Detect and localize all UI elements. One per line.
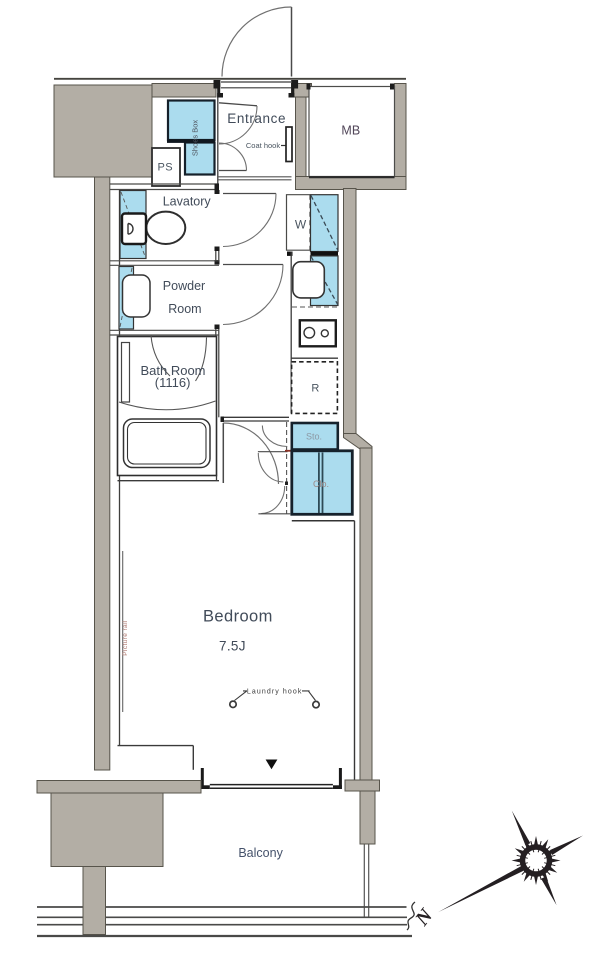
- svg-text:Coat hook: Coat hook: [246, 141, 280, 150]
- svg-text:W: W: [295, 217, 307, 231]
- svg-text:Laundry hook: Laundry hook: [247, 689, 303, 696]
- svg-text:Balcony: Balcony: [238, 846, 283, 860]
- svg-text:Shoes Box: Shoes Box: [191, 120, 200, 157]
- svg-text:(1116): (1116): [155, 375, 191, 390]
- svg-text:PS: PS: [157, 161, 172, 173]
- svg-text:Clo.: Clo.: [313, 479, 329, 489]
- svg-text:Picture rail: Picture rail: [122, 620, 129, 656]
- svg-text:7.5J: 7.5J: [219, 639, 246, 654]
- svg-text:Powder: Powder: [163, 279, 205, 293]
- svg-text:Bedroom: Bedroom: [203, 608, 273, 626]
- svg-text:MB: MB: [341, 124, 360, 138]
- svg-text:Room: Room: [168, 302, 201, 316]
- svg-text:R: R: [311, 382, 319, 394]
- svg-text:Lavatory: Lavatory: [163, 195, 212, 209]
- svg-text:Sto.: Sto.: [306, 432, 322, 442]
